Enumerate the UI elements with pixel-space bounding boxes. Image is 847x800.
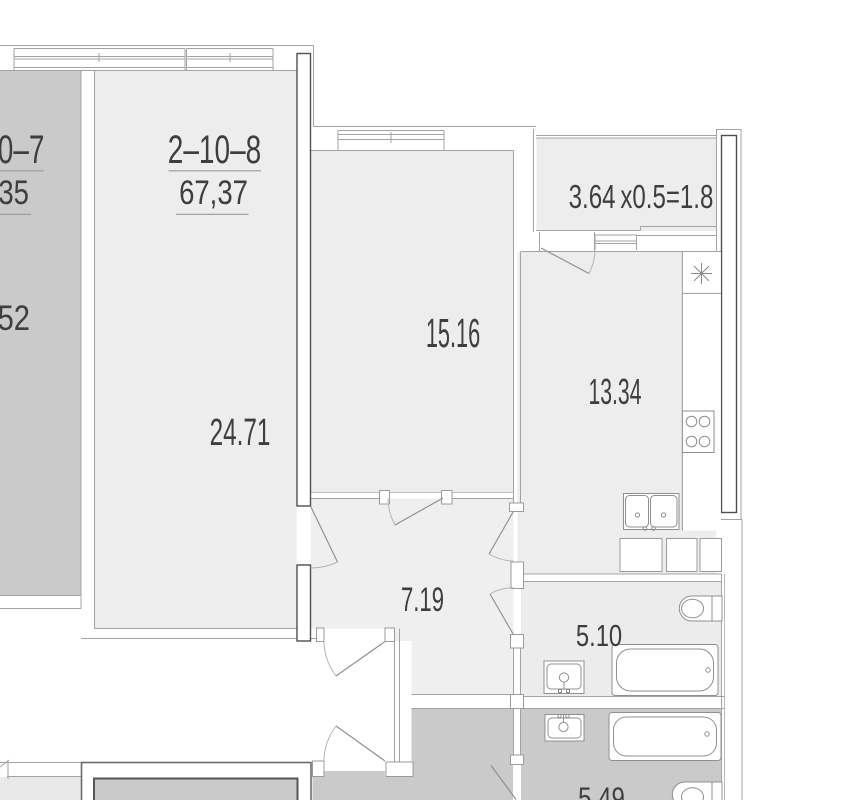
svg-text:17,52: 17,52: [0, 298, 30, 337]
svg-text:7.19: 7.19: [401, 581, 444, 619]
svg-text:2–10–7: 2–10–7: [0, 128, 45, 172]
svg-text:24.71: 24.71: [210, 410, 271, 453]
svg-text:13.34: 13.34: [589, 372, 642, 412]
svg-text:15.16: 15.16: [426, 310, 480, 356]
svg-text:3.64 x0.5=1.8: 3.64 x0.5=1.8: [569, 179, 714, 216]
svg-text:61,35: 61,35: [0, 173, 29, 211]
svg-text:2–10–8: 2–10–8: [168, 128, 261, 172]
svg-text:67,37: 67,37: [179, 173, 248, 211]
svg-text:5.10: 5.10: [576, 618, 622, 653]
svg-text:5.49: 5.49: [578, 780, 625, 800]
